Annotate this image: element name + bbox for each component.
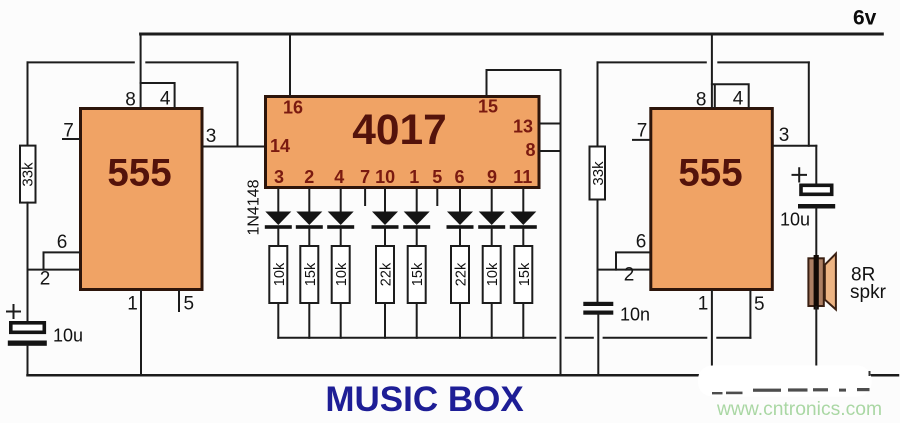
- svg-text:1: 1: [127, 294, 138, 315]
- svg-text:10k: 10k: [334, 262, 350, 286]
- svg-text:10u: 10u: [780, 210, 810, 230]
- svg-text:5: 5: [754, 294, 765, 315]
- svg-text:8: 8: [525, 140, 535, 160]
- svg-text:6v: 6v: [853, 7, 877, 30]
- svg-text:2: 2: [304, 167, 314, 187]
- svg-text:5: 5: [184, 294, 195, 315]
- svg-text:3: 3: [206, 126, 217, 147]
- svg-text:2: 2: [624, 265, 635, 286]
- svg-text:22k: 22k: [454, 262, 470, 286]
- svg-text:22k: 22k: [379, 262, 395, 286]
- svg-text:4: 4: [733, 89, 744, 110]
- svg-text:555: 555: [678, 152, 742, 195]
- svg-text:7: 7: [360, 167, 370, 187]
- svg-text:3: 3: [274, 167, 284, 187]
- svg-text:1: 1: [698, 294, 709, 315]
- svg-text:10u: 10u: [53, 326, 83, 346]
- svg-text:15k: 15k: [303, 262, 319, 286]
- svg-text:4017: 4017: [352, 107, 447, 154]
- svg-text:15k: 15k: [410, 262, 426, 286]
- svg-text:1N4148: 1N4148: [246, 179, 263, 235]
- svg-text:555: 555: [107, 152, 171, 195]
- svg-text:10n: 10n: [620, 305, 650, 325]
- svg-text:10k: 10k: [272, 262, 288, 286]
- svg-text:14: 14: [270, 136, 290, 156]
- svg-text:9: 9: [487, 167, 497, 187]
- svg-text:8: 8: [125, 89, 136, 110]
- svg-text:11: 11: [513, 167, 532, 187]
- svg-text:6: 6: [57, 232, 68, 253]
- svg-text:13: 13: [513, 117, 533, 137]
- svg-text:spkr: spkr: [850, 282, 887, 303]
- svg-text:10: 10: [375, 167, 395, 187]
- svg-text:10k: 10k: [485, 262, 501, 286]
- svg-text:4: 4: [160, 89, 171, 110]
- svg-text:6: 6: [636, 232, 647, 253]
- svg-text:16: 16: [283, 98, 303, 118]
- svg-text:33k: 33k: [590, 161, 607, 186]
- svg-text:15: 15: [478, 97, 498, 117]
- svg-text:5: 5: [432, 167, 442, 187]
- svg-text:2: 2: [40, 269, 51, 290]
- svg-text:33k: 33k: [20, 162, 37, 187]
- svg-text:1: 1: [409, 167, 419, 187]
- svg-text:MUSIC BOX: MUSIC BOX: [325, 380, 524, 419]
- svg-text:7: 7: [637, 121, 648, 142]
- svg-text:8: 8: [696, 89, 707, 110]
- svg-text:6: 6: [454, 167, 464, 187]
- svg-text:3: 3: [779, 125, 790, 146]
- svg-text:www.cntronics.com: www.cntronics.com: [716, 399, 882, 420]
- svg-text:4: 4: [334, 167, 344, 187]
- svg-text:7: 7: [63, 121, 74, 142]
- svg-text:15k: 15k: [517, 262, 533, 286]
